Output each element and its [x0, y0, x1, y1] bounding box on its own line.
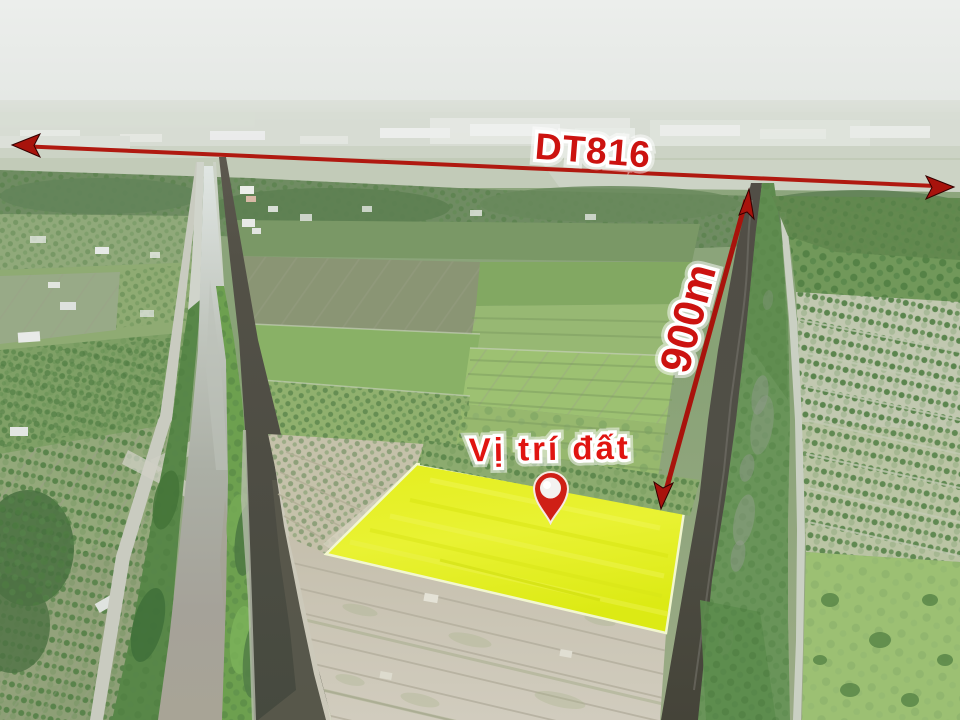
svg-text:Vị trí đất: Vị trí đất	[468, 429, 631, 469]
